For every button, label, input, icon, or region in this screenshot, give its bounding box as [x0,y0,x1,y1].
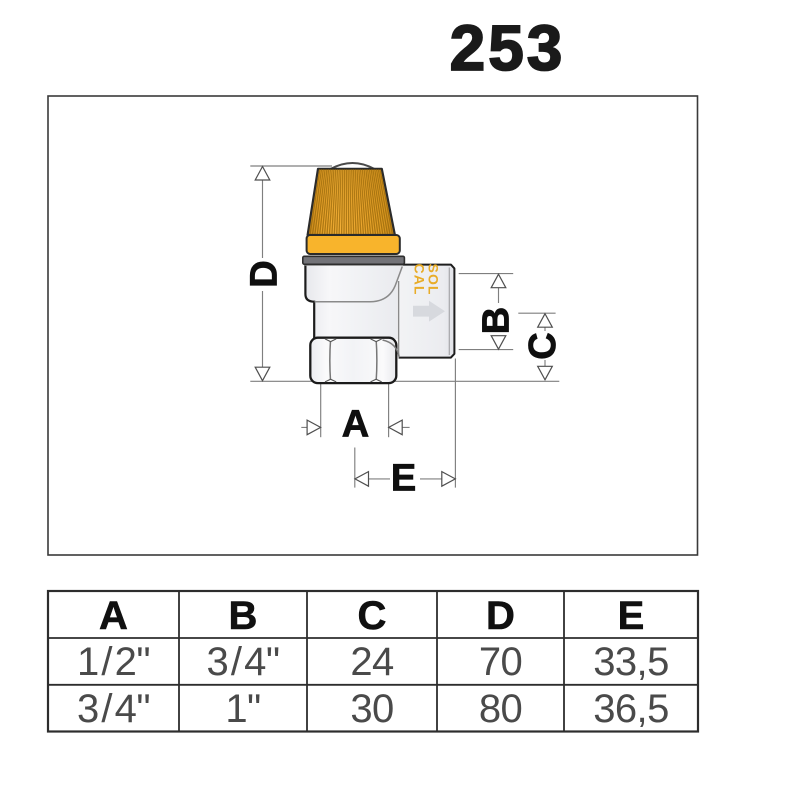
svg-text:253: 253 [450,12,566,84]
svg-text:E: E [618,594,645,638]
svg-text:3 / 4": 3 / 4" [77,687,150,731]
svg-text:C: C [358,594,387,638]
svg-text:C: C [522,332,564,359]
svg-text:A: A [342,404,369,446]
svg-text:A: A [99,594,128,638]
svg-text:80: 80 [479,687,522,731]
svg-text:33,5: 33,5 [593,640,668,684]
svg-text:B: B [476,307,518,334]
svg-text:1 / 2": 1 / 2" [77,640,150,684]
svg-text:70: 70 [479,640,522,684]
svg-text:30: 30 [350,687,393,731]
svg-text:E: E [391,458,416,500]
svg-text:3 / 4": 3 / 4" [207,640,280,684]
svg-text:D: D [486,594,515,638]
svg-text:36,5: 36,5 [593,687,668,731]
svg-text:1": 1" [225,687,260,731]
svg-text:CAL: CAL [412,264,428,296]
svg-text:SOL: SOL [426,264,442,296]
svg-text:D: D [244,260,286,287]
svg-text:24: 24 [350,640,394,684]
svg-text:B: B [229,594,258,638]
